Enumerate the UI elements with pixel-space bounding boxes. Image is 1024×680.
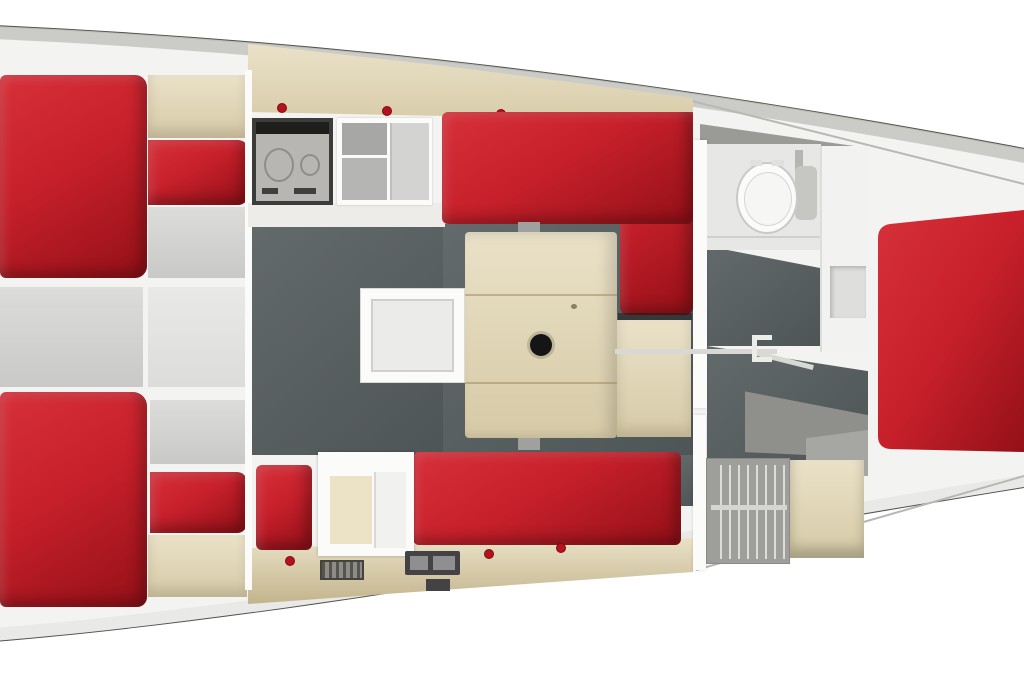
chart-table	[318, 452, 414, 556]
vent-grille	[320, 560, 364, 580]
clothes-hangers	[713, 465, 785, 559]
aft-starboard-shelf	[148, 535, 247, 597]
galley-sink	[337, 118, 432, 205]
toilet-plumbing	[795, 166, 817, 220]
aft-starboard-infill-cushion	[150, 400, 248, 464]
saloon-table	[465, 232, 617, 438]
instrument-panel	[405, 551, 460, 575]
toilet-lid	[744, 172, 792, 226]
instrument-sub-panel	[426, 579, 450, 591]
aft-port-berth-extension	[148, 140, 248, 205]
mast-post-hole	[530, 334, 552, 356]
locker-knob	[484, 549, 494, 559]
sink-drainer	[390, 123, 429, 200]
locker-knob	[556, 543, 566, 553]
table-support-top	[518, 222, 540, 232]
locker-knob	[277, 103, 287, 113]
hatch-panel	[371, 299, 454, 372]
chart-table-wood-top	[330, 476, 372, 544]
aft-cabin-bulkhead	[245, 70, 252, 590]
instrument-display	[410, 556, 428, 570]
sole-access-hatch	[360, 288, 465, 383]
vanity-locker	[830, 266, 866, 318]
sink-bowl-large	[342, 158, 387, 200]
aft-port-shelf	[148, 75, 247, 138]
aft-port-infill-cushion	[148, 207, 248, 278]
head-door-handle	[752, 335, 772, 362]
aft-wood-cabinet	[790, 460, 864, 558]
table-support-bottom	[518, 438, 540, 450]
table-leaf-seam	[465, 294, 617, 296]
seat-shadow	[618, 313, 692, 320]
toilet-hinge	[750, 160, 762, 166]
starboard-locker-band	[248, 538, 693, 604]
toilet-hinge	[772, 160, 784, 166]
stove-rail-left	[262, 188, 278, 194]
locker-bulkhead	[693, 415, 706, 570]
floorplan-canvas	[0, 0, 1024, 680]
aft-starboard-berth-extension	[150, 472, 247, 533]
table-recess-dot	[571, 304, 577, 309]
nav-seat	[256, 465, 312, 550]
midship-infill-a	[0, 287, 143, 387]
stove-control-strip	[256, 122, 329, 134]
stove-burner-small	[300, 154, 320, 176]
head-bulkhead-right	[820, 146, 870, 352]
head-wall-seam	[707, 236, 821, 238]
forward-berth	[878, 210, 1024, 452]
midship-infill-b	[148, 287, 248, 387]
stove-burner-large	[264, 148, 294, 182]
chart-table-panel	[374, 472, 406, 548]
head-bulkhead-left	[693, 140, 707, 408]
locker-knob	[382, 106, 392, 116]
galley-worktop	[248, 203, 445, 227]
sole-patch	[680, 455, 693, 506]
settee	[413, 452, 681, 545]
instrument-display	[433, 556, 455, 570]
galley-stove	[252, 118, 333, 205]
locker-knob	[285, 556, 295, 566]
table-leaf-seam	[465, 382, 617, 384]
toilet	[736, 162, 798, 234]
stove-rail-right	[294, 188, 316, 194]
hanger-rail	[711, 505, 787, 510]
sink-bowl-small	[342, 123, 387, 155]
saloon-side-step	[617, 320, 691, 437]
aft-port-berth	[0, 75, 147, 278]
hanging-locker	[706, 458, 790, 564]
aft-starboard-berth	[0, 392, 147, 607]
dinette-seat-top	[442, 112, 693, 224]
